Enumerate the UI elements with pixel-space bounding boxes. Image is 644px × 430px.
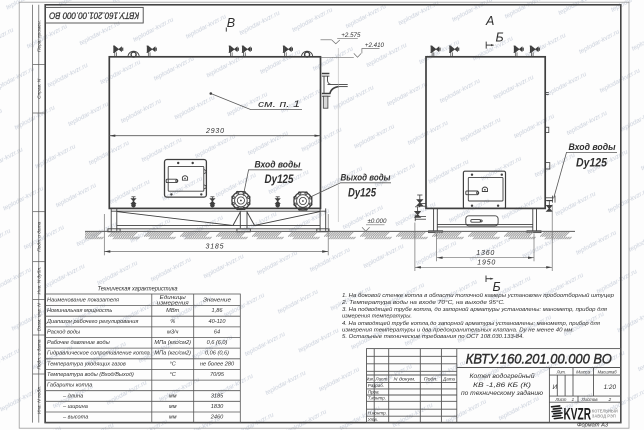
- svg-text:измерения температуры.: измерения температуры.: [342, 314, 412, 320]
- svg-text:по техническому заданию: по техническому заданию: [461, 389, 543, 397]
- svg-text:И: И: [553, 384, 558, 391]
- svg-text:МВт: МВт: [166, 308, 179, 314]
- svg-text:Выход воды: Выход воды: [341, 173, 391, 183]
- svg-text:Dy125: Dy125: [576, 156, 607, 170]
- svg-text:Габариты котла: Габариты котла: [47, 383, 92, 389]
- svg-text:40-110: 40-110: [208, 319, 226, 325]
- svg-text:МПа (кгс/см2): МПа (кгс/см2): [154, 351, 191, 357]
- svg-text:Техническая характеристика: Техническая характеристика: [98, 286, 178, 293]
- svg-text:– высота: – высота: [62, 415, 88, 421]
- svg-text:МПа (кгс/см2): МПа (кгс/см2): [154, 340, 191, 346]
- svg-text:Вход воды: Вход воды: [569, 142, 616, 152]
- svg-text:Н.контр.: Н.контр.: [368, 411, 387, 416]
- svg-text:м3/ч: м3/ч: [167, 330, 178, 336]
- svg-text:1:20: 1:20: [604, 384, 617, 391]
- svg-text:КОТЕЛЬНЫЙ: КОТЕЛЬНЫЙ: [592, 406, 618, 413]
- svg-text:Масштаб: Масштаб: [598, 369, 617, 374]
- svg-text:Подп. и дата: Подп. и дата: [37, 221, 43, 251]
- svg-text:КВТУ.160.201.00.000 ВО: КВТУ.160.201.00.000 ВО: [466, 351, 612, 367]
- svg-text:ЗАВОД РЭП: ЗАВОД РЭП: [592, 414, 616, 419]
- svg-text:Dy125: Dy125: [265, 172, 294, 186]
- svg-text:0,06 (0,6): 0,06 (0,6): [205, 351, 229, 357]
- svg-text:1: 1: [572, 397, 575, 403]
- svg-text:измерения температуры и два пр: измерения температуры и два предохраните…: [342, 327, 574, 333]
- svg-text:– длина: – длина: [62, 393, 83, 399]
- svg-text:Гидравлическое сопротивление к: Гидравлическое сопротивление котла: [47, 351, 150, 357]
- svg-text:А: А: [485, 14, 494, 28]
- svg-text:3. На подводящей трубе котла,: 3. На подводящей трубе котла, до запорно…: [342, 306, 607, 313]
- svg-text:Подп.: Подп.: [424, 377, 438, 382]
- svg-text:Листов: Листов: [581, 397, 598, 403]
- svg-text:Масса: Масса: [576, 369, 591, 374]
- svg-text:Dy125: Dy125: [348, 185, 376, 199]
- svg-text:– ширина: – ширина: [62, 404, 88, 410]
- svg-text:Инв. N дубл.: Инв. N дубл.: [37, 267, 43, 295]
- svg-text:1360: 1360: [476, 250, 494, 257]
- svg-text:°С: °С: [170, 372, 177, 378]
- svg-text:%: %: [170, 319, 175, 325]
- svg-text:Вход воды: Вход воды: [255, 160, 301, 170]
- svg-text:Лист: Лист: [374, 377, 387, 382]
- svg-text:Расход воды: Расход воды: [47, 330, 80, 336]
- svg-text:Температура воды (Вход/Выход): Температура воды (Вход/Выход): [47, 372, 134, 378]
- svg-text:мм: мм: [169, 393, 177, 399]
- svg-text:+2.575: +2.575: [341, 32, 361, 39]
- svg-text:1,86: 1,86: [212, 308, 224, 314]
- svg-text:2930: 2930: [205, 128, 224, 135]
- svg-text:Температура уходящих газов: Температура уходящих газов: [47, 361, 126, 367]
- svg-text:1. На боковой стенке котла в: 1. На боковой стенке котла в области топ…: [342, 292, 614, 299]
- svg-text:Наименование показателя: Наименование показателя: [47, 298, 119, 304]
- svg-text:±0.000: ±0.000: [368, 218, 387, 225]
- svg-text:Пров.: Пров.: [368, 389, 380, 394]
- svg-text:64: 64: [214, 330, 220, 336]
- svg-text:КВ -1,86 КБ (К): КВ -1,86 КБ (К): [473, 382, 531, 389]
- svg-text:70/95: 70/95: [210, 372, 225, 378]
- svg-text:Дата: Дата: [442, 377, 456, 382]
- svg-text:Справ. N: Справ. N: [37, 78, 43, 99]
- svg-text:Лист: Лист: [555, 397, 567, 403]
- svg-text:2. Температура воды на входе: 2. Температура воды на входе 70°С, на вы…: [341, 300, 505, 306]
- svg-text:мм: мм: [169, 415, 177, 421]
- svg-text:KVZR: KVZR: [564, 405, 592, 424]
- svg-text:измерения: измерения: [157, 301, 189, 307]
- svg-text:3185: 3185: [211, 393, 224, 399]
- svg-text:Рабочее давление воды: Рабочее давление воды: [47, 340, 110, 346]
- svg-text:Формат А3: Формат А3: [577, 422, 608, 428]
- svg-text:Диапазон рабочего регулировани: Диапазон рабочего регулирования: [46, 319, 138, 325]
- svg-text:1830: 1830: [211, 404, 224, 410]
- svg-text:4. На отводящей трубе котла,д: 4. На отводящей трубе котла,до запорной …: [342, 320, 600, 327]
- svg-text:Перв. примен.: Перв. примен.: [37, 20, 43, 52]
- svg-text:КВТУ.160.201.00.000 ВО: КВТУ.160.201.00.000 ВО: [49, 10, 139, 20]
- svg-text:Лит.: Лит.: [556, 369, 566, 374]
- svg-text:°С: °С: [170, 361, 177, 367]
- svg-text:Утв.: Утв.: [368, 417, 378, 422]
- svg-text:0,6 (6,0): 0,6 (6,0): [207, 340, 228, 346]
- svg-text:+2.410: +2.410: [365, 42, 385, 49]
- svg-text:3185: 3185: [206, 244, 224, 251]
- svg-text:Подп. и дата: Подп. и дата: [37, 339, 43, 369]
- svg-text:Значение: Значение: [203, 298, 231, 304]
- svg-text:Номинальная мощность: Номинальная мощность: [47, 308, 112, 314]
- svg-text:Т.контр.: Т.контр.: [368, 396, 386, 401]
- svg-text:Б: Б: [496, 30, 504, 44]
- svg-text:2: 2: [608, 397, 612, 403]
- svg-text:Изм.: Изм.: [367, 377, 374, 382]
- svg-text:1950: 1950: [477, 260, 495, 267]
- svg-text:мм: мм: [169, 404, 177, 410]
- svg-text:2460: 2460: [210, 415, 224, 421]
- svg-text:В: В: [227, 16, 235, 30]
- svg-text:см. п. 1: см. п. 1: [258, 99, 300, 109]
- svg-text:Разраб.: Разраб.: [368, 383, 384, 388]
- svg-text:Котел водогрейный: Котел водогрейный: [470, 372, 535, 380]
- svg-text:N докум.: N докум.: [394, 377, 416, 382]
- svg-text:Взам. инв. N: Взам. инв. N: [37, 303, 43, 331]
- svg-text:не более 280: не более 280: [200, 361, 235, 367]
- svg-text:5. Остальные технические треб: 5. Остальные технические требования по О…: [342, 334, 524, 340]
- svg-text:Инв. N подл.: Инв. N подл.: [37, 386, 43, 414]
